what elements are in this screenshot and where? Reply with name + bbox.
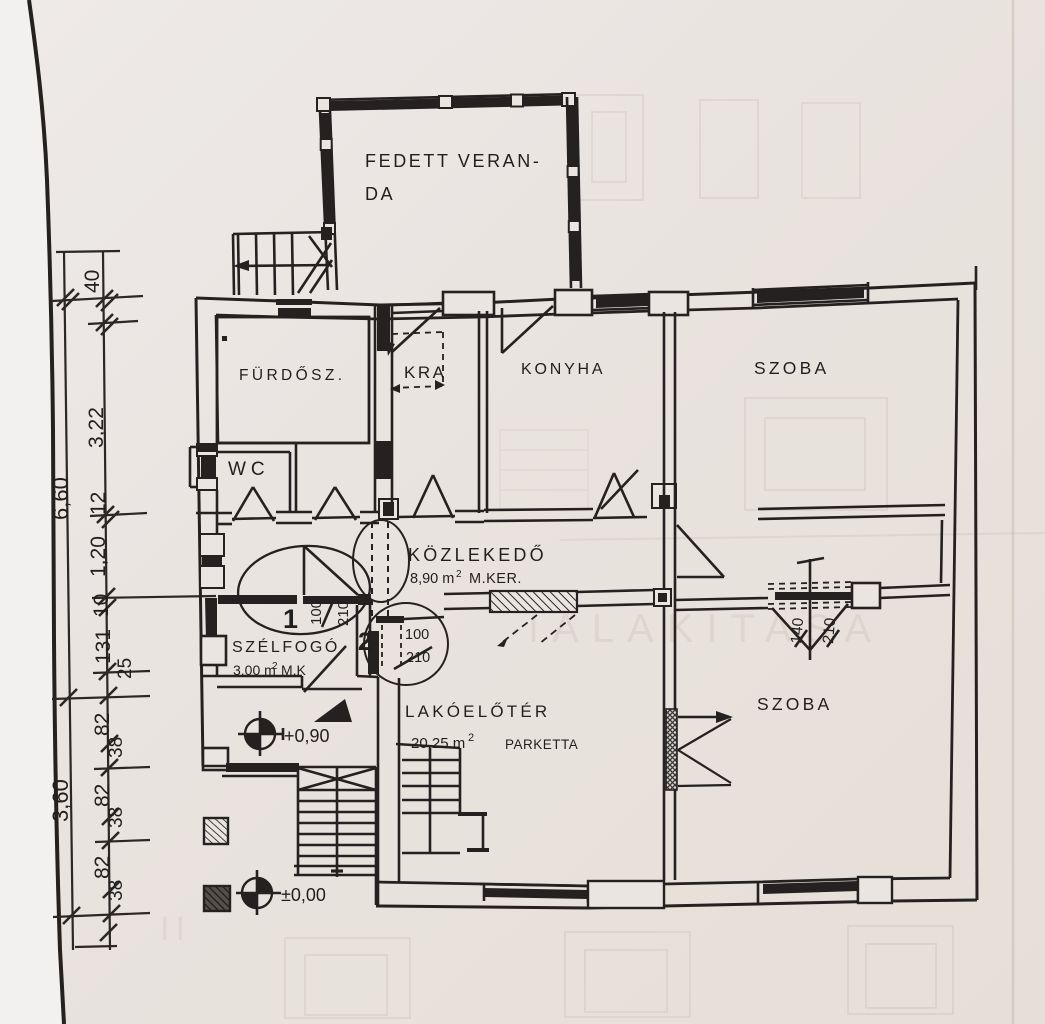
- svg-text:38: 38: [106, 737, 127, 758]
- svg-text:8,90 m: 8,90 m: [410, 571, 454, 587]
- svg-text:100: 100: [405, 627, 429, 643]
- svg-text:SZOBA: SZOBA: [754, 358, 829, 378]
- svg-text:210: 210: [406, 650, 430, 666]
- svg-text:II: II: [160, 910, 191, 948]
- svg-text:3,22: 3,22: [85, 407, 108, 448]
- svg-text:2: 2: [468, 732, 474, 744]
- svg-text:1: 1: [283, 604, 298, 634]
- svg-text:25: 25: [115, 658, 136, 679]
- svg-text:38: 38: [106, 880, 127, 901]
- svg-text:FÜRDŐSZ.: FÜRDŐSZ.: [239, 366, 345, 384]
- svg-text:140: 140: [788, 617, 807, 645]
- svg-text:10: 10: [90, 594, 113, 617]
- svg-text:WC: WC: [228, 459, 270, 480]
- svg-text:2: 2: [456, 569, 462, 580]
- svg-text:210: 210: [335, 601, 352, 626]
- svg-text:PARKETTA: PARKETTA: [505, 737, 578, 752]
- svg-text:20,25 m: 20,25 m: [411, 735, 465, 752]
- svg-text:82: 82: [91, 856, 114, 879]
- svg-text:M.KER.: M.KER.: [469, 571, 522, 587]
- svg-text:SZOBA: SZOBA: [757, 694, 832, 714]
- svg-text:+0,90: +0,90: [284, 726, 330, 746]
- svg-text:±0,00: ±0,00: [281, 885, 326, 905]
- svg-text:82: 82: [91, 713, 114, 736]
- svg-text:38: 38: [106, 807, 127, 828]
- svg-text:3,00 m: 3,00 m: [233, 662, 276, 678]
- svg-text:2: 2: [272, 661, 278, 672]
- svg-text:100: 100: [308, 600, 325, 625]
- svg-text:6,60: 6,60: [48, 477, 73, 520]
- svg-text:DA: DA: [365, 184, 395, 204]
- svg-text:KRA: KRA: [404, 363, 446, 382]
- svg-text:KONYHA: KONYHA: [521, 361, 605, 378]
- svg-text:M.K: M.K: [281, 662, 307, 678]
- svg-text:3,60: 3,60: [48, 779, 73, 822]
- svg-text:82: 82: [91, 784, 114, 807]
- svg-text:2: 2: [358, 628, 372, 656]
- svg-text:SZÉLFOGÓ: SZÉLFOGÓ: [232, 637, 340, 656]
- svg-text:FEDETT VERAN-: FEDETT VERAN-: [365, 151, 541, 171]
- svg-text:12: 12: [87, 492, 110, 515]
- svg-text:LAKÓELŐTÉR: LAKÓELŐTÉR: [405, 702, 550, 721]
- svg-text:210: 210: [820, 617, 839, 645]
- svg-text:40: 40: [81, 270, 104, 293]
- svg-text:KÖZLEKEDŐ: KÖZLEKEDŐ: [408, 544, 547, 565]
- svg-text:131: 131: [92, 629, 115, 664]
- svg-text:1,20: 1,20: [87, 536, 110, 577]
